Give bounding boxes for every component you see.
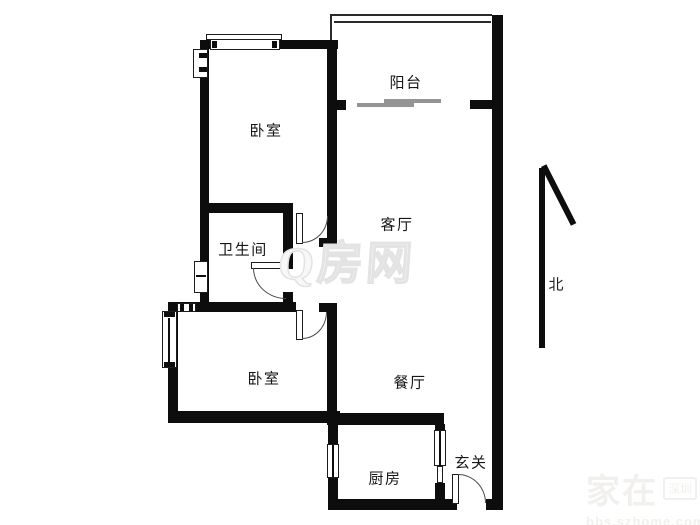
window-cap bbox=[332, 445, 334, 477]
watermark-corner-main: 家在 bbox=[586, 464, 658, 513]
window-cap bbox=[164, 362, 175, 367]
wall-segment bbox=[327, 47, 337, 247]
wall-segment bbox=[327, 413, 444, 425]
sliding-door-rail bbox=[357, 103, 414, 107]
room-label-balcony: 阳台 bbox=[389, 72, 422, 93]
window-cap bbox=[164, 312, 175, 317]
window-cap bbox=[168, 318, 170, 362]
sliding-door-jamb bbox=[470, 100, 493, 109]
window-cap bbox=[212, 41, 217, 48]
room-label-dining-room: 餐厅 bbox=[393, 372, 426, 393]
wall-segment bbox=[200, 203, 293, 213]
north-label: 北 bbox=[548, 274, 563, 295]
window-cap bbox=[189, 304, 193, 311]
room-label-foyer: 玄关 bbox=[454, 452, 487, 473]
balcony-railing-line bbox=[334, 21, 491, 23]
window-symbol bbox=[210, 39, 280, 50]
wall-segment bbox=[492, 15, 503, 510]
window-cap bbox=[180, 304, 184, 311]
watermark-corner: 家在 深圳 bbs.szhome.com bbox=[586, 464, 700, 525]
room-label-kitchen: 厨房 bbox=[368, 468, 401, 489]
room-label-bathroom: 卫生间 bbox=[218, 239, 268, 260]
window-cap bbox=[439, 431, 441, 465]
room-label-bedroom-south: 卧室 bbox=[247, 368, 280, 389]
window-cap bbox=[199, 67, 207, 72]
floor-plan: 阳台 卧室 客厅 卫生间 卧室 餐厅 厨房 玄关 北 Q房网 家在 深圳 bbs… bbox=[0, 0, 700, 525]
north-arrow-barb bbox=[541, 164, 576, 226]
window-cap bbox=[196, 275, 206, 277]
balcony-railing-line bbox=[330, 14, 332, 42]
kitchen-opening-frame bbox=[437, 466, 443, 483]
wall-segment bbox=[435, 483, 445, 500]
watermark-center-logo: Q房网 bbox=[276, 227, 417, 293]
window-symbol bbox=[194, 261, 208, 293]
sliding-door-jamb bbox=[332, 100, 346, 110]
watermark-corner-url: bbs.szhome.com bbox=[586, 514, 700, 525]
wall-segment bbox=[486, 499, 503, 510]
wall-segment bbox=[328, 499, 457, 510]
north-arrow-shaft bbox=[539, 168, 545, 348]
entry-door-swing-arc bbox=[458, 474, 486, 503]
window-cap bbox=[272, 41, 277, 48]
balcony-railing-line bbox=[330, 14, 492, 16]
window-cap bbox=[199, 53, 207, 58]
door-swing-arc bbox=[302, 312, 327, 339]
room-label-bedroom-north: 卧室 bbox=[249, 120, 282, 141]
sliding-door-rail bbox=[384, 99, 441, 103]
wall-segment bbox=[328, 424, 338, 444]
wall-segment bbox=[327, 303, 337, 424]
watermark-corner-badge: 深圳 bbox=[663, 477, 697, 500]
wall-segment bbox=[168, 411, 340, 423]
